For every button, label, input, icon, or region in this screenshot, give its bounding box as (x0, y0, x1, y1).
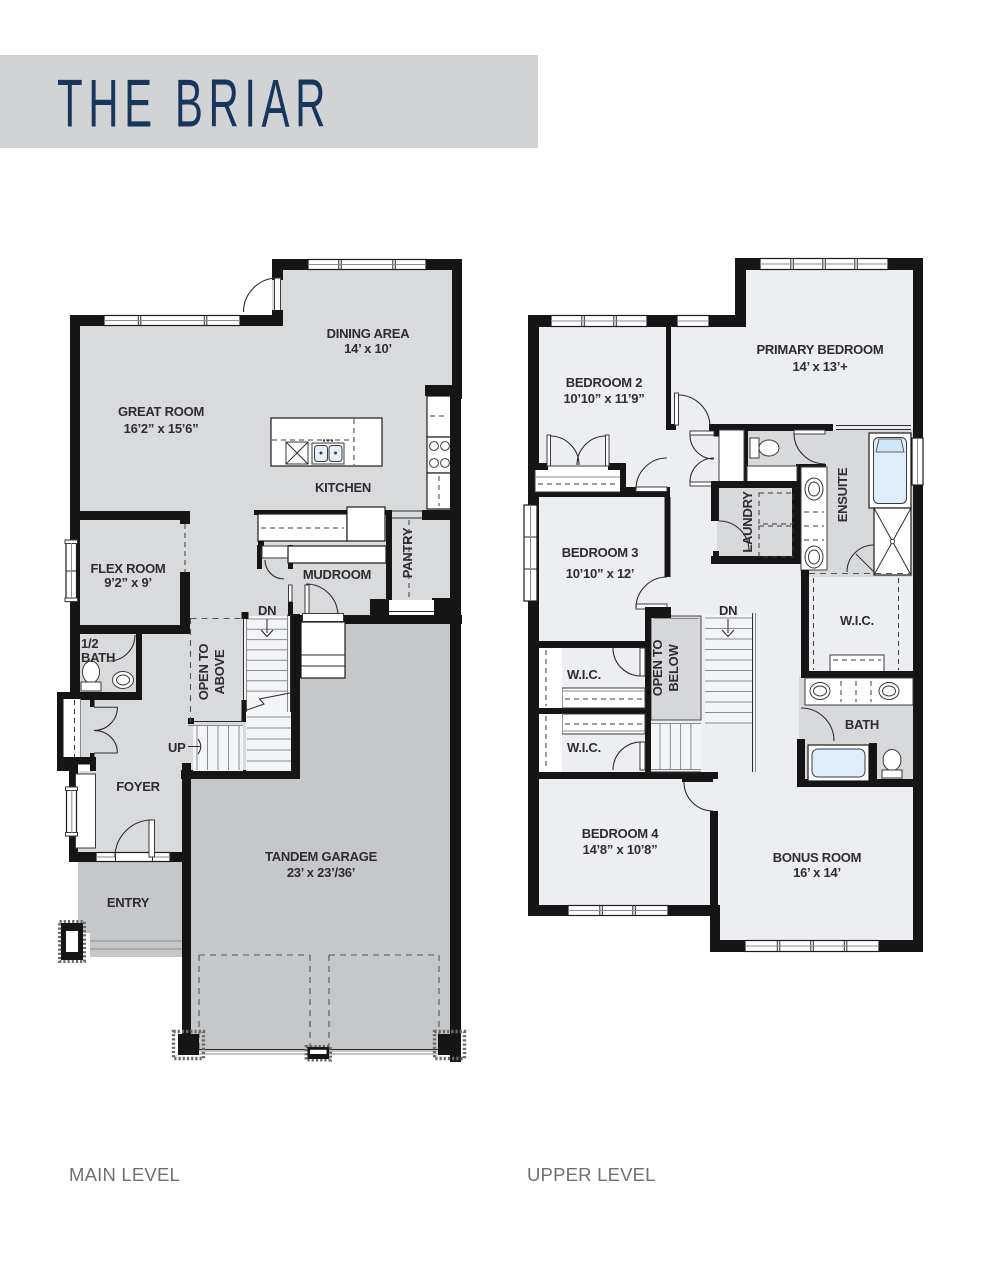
svg-text:BEDROOM 2: BEDROOM 2 (566, 375, 643, 390)
svg-text:BEDROOM 4: BEDROOM 4 (582, 826, 660, 841)
svg-text:14’ x 10’: 14’ x 10’ (344, 341, 392, 356)
svg-text:1/2: 1/2 (81, 636, 98, 651)
svg-text:FLEX ROOM: FLEX ROOM (90, 561, 165, 576)
svg-text:BELOW: BELOW (666, 643, 681, 691)
svg-text:ABOVE: ABOVE (212, 649, 227, 695)
svg-text:W.I.C.: W.I.C. (840, 613, 874, 628)
svg-text:DN: DN (258, 603, 276, 618)
svg-text:16’2” x 15’6”: 16’2” x 15’6” (124, 421, 199, 436)
svg-text:THE BRIAR: THE BRIAR (57, 66, 331, 142)
svg-text:9’2” x 9’: 9’2” x 9’ (104, 575, 152, 590)
svg-text:KITCHEN: KITCHEN (315, 480, 371, 495)
svg-text:FOYER: FOYER (116, 779, 160, 794)
svg-text:ENSUITE: ENSUITE (835, 467, 850, 522)
svg-text:PRIMARY BEDROOM: PRIMARY BEDROOM (757, 342, 884, 357)
svg-text:14’8” x 10’8”: 14’8” x 10’8” (583, 842, 658, 857)
svg-text:10’10” x 11’9”: 10’10” x 11’9” (563, 391, 644, 406)
svg-text:10’10” x 12’: 10’10” x 12’ (566, 566, 635, 581)
svg-text:PANTRY: PANTRY (400, 527, 415, 578)
svg-text:23’ x 23’/36’: 23’ x 23’/36’ (287, 865, 355, 880)
svg-text:BATH: BATH (81, 650, 115, 665)
svg-text:14’ x 13’+: 14’ x 13’+ (793, 359, 849, 374)
svg-text:UPPER LEVEL: UPPER LEVEL (527, 1164, 656, 1185)
svg-text:W.I.C.: W.I.C. (567, 667, 601, 682)
svg-text:DN: DN (719, 603, 737, 618)
svg-text:DINING AREA: DINING AREA (327, 326, 411, 341)
svg-text:16’ x 14’: 16’ x 14’ (793, 865, 841, 880)
svg-text:MUDROOM: MUDROOM (303, 567, 371, 582)
svg-text:MAIN LEVEL: MAIN LEVEL (69, 1164, 180, 1185)
svg-text:TANDEM GARAGE: TANDEM GARAGE (265, 849, 378, 864)
svg-text:OPEN TO: OPEN TO (650, 640, 665, 697)
svg-text:UP: UP (168, 740, 186, 755)
svg-text:GREAT ROOM: GREAT ROOM (118, 404, 204, 419)
svg-text:W.I.C.: W.I.C. (567, 740, 601, 755)
svg-text:BEDROOM 3: BEDROOM 3 (562, 545, 639, 560)
svg-text:OPEN TO: OPEN TO (196, 644, 211, 701)
svg-text:BATH: BATH (845, 717, 879, 732)
svg-text:ENTRY: ENTRY (107, 895, 150, 910)
svg-text:LAUNDRY: LAUNDRY (740, 491, 755, 553)
svg-text:BONUS ROOM: BONUS ROOM (773, 850, 862, 865)
